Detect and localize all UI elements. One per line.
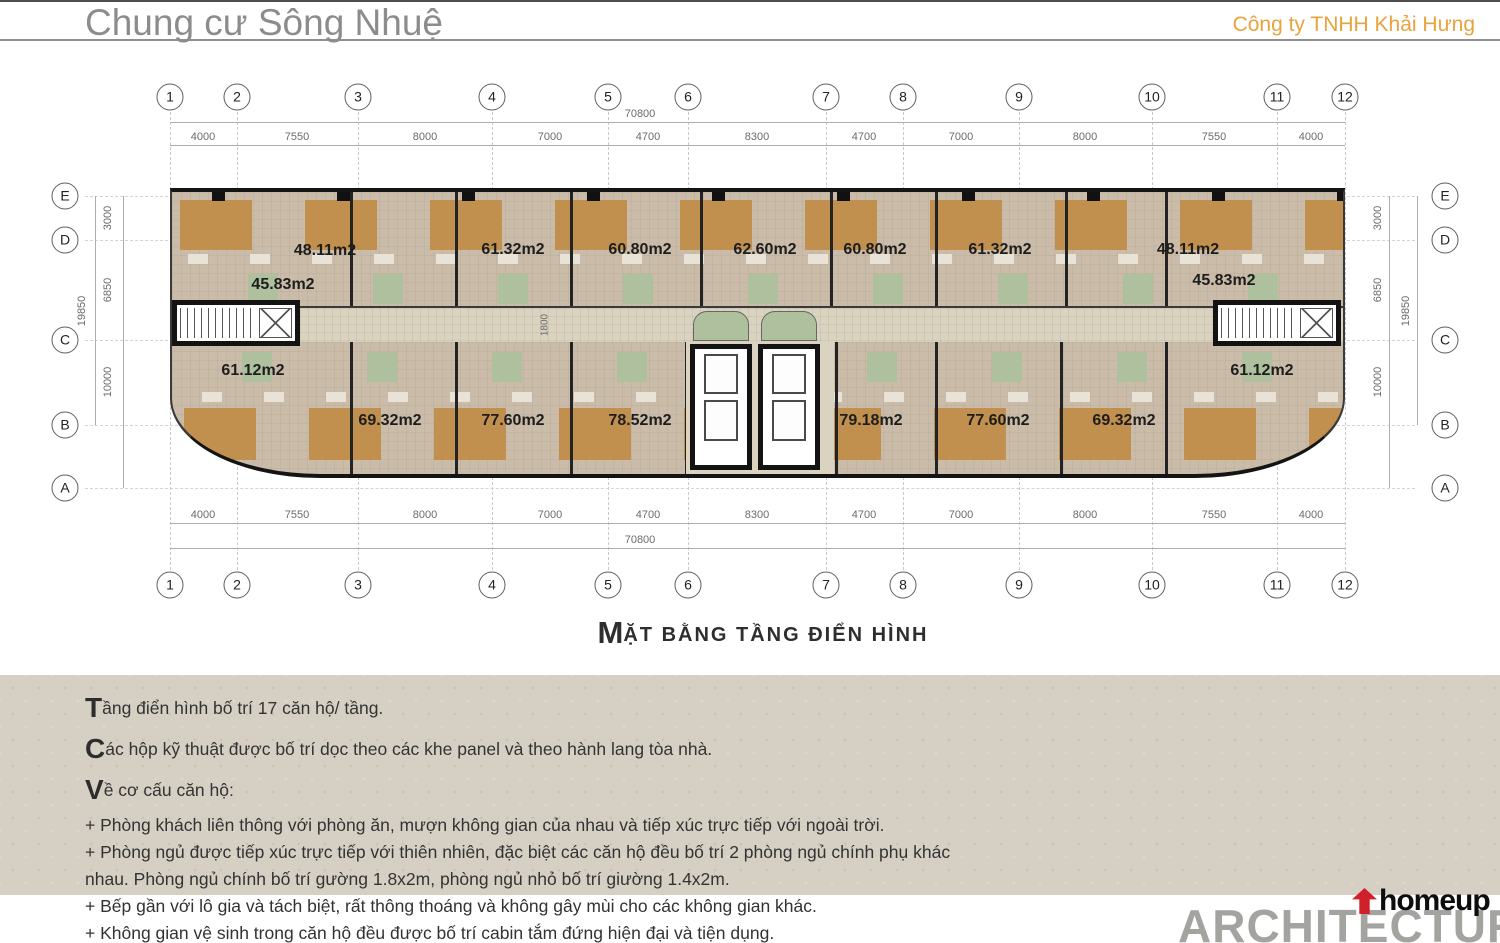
note-initial: C — [85, 733, 105, 764]
stair-core-left — [172, 300, 300, 346]
grid-row-bubble: E — [1432, 183, 1459, 210]
unit-area-label: 62.60m2 — [733, 241, 796, 259]
elevator-car — [772, 400, 806, 440]
page: Chung cư Sông Nhuệ Công ty TNHH Khải Hưn… — [0, 0, 1500, 943]
dimension-line — [170, 145, 1345, 146]
dimension-line — [170, 523, 1345, 524]
unit-wall — [1165, 342, 1168, 474]
grid-column-bubble: 8 — [890, 84, 917, 111]
unit-area-label: 48.11m2 — [1157, 241, 1219, 259]
note-rest: ầng điển hình bố trí 17 căn hộ/ tầng. — [102, 698, 383, 718]
grid-row-bubble: A — [52, 475, 79, 502]
dim-label: 4000 — [1299, 131, 1323, 143]
dim-label: 7550 — [1202, 509, 1226, 521]
dimension-line — [1389, 196, 1390, 488]
unit-area-label: 45.83m2 — [251, 276, 314, 294]
dim-label: 8300 — [745, 509, 769, 521]
caption-rest: ẶT BẰNG TẦNG ĐIỂN HÌNH — [623, 624, 928, 646]
dim-label: 7550 — [285, 509, 309, 521]
corridor — [170, 308, 1345, 342]
bullet-item: + Không gian vệ sinh trong căn hộ đều đư… — [85, 920, 990, 943]
company-name: Công ty TNHH Khải Hưng — [1233, 13, 1475, 37]
grid-column-bubble: 3 — [345, 84, 372, 111]
unit-wall — [570, 192, 573, 306]
dim-label: 10000 — [102, 367, 114, 398]
dim-label: 8000 — [413, 509, 437, 521]
stair-steps — [1221, 308, 1296, 338]
unit-wall — [700, 192, 703, 306]
grid-column-bubble: 9 — [1006, 84, 1033, 111]
elevator-car — [704, 354, 738, 394]
unit-area-label: 61.12m2 — [1230, 362, 1293, 380]
grid-column-bubble: 2 — [224, 84, 251, 111]
grid-line — [85, 488, 1415, 489]
dimension-line — [170, 122, 1345, 123]
dimension-line — [170, 548, 1345, 549]
dim-label: 7000 — [949, 131, 973, 143]
grid-column-bubble: 8 — [890, 572, 917, 599]
note-line: Các hộp kỹ thuật được bố trí dọc theo cá… — [85, 733, 990, 765]
dim-total-bottom: 70800 — [625, 534, 656, 546]
dim-label: 8300 — [745, 131, 769, 143]
grid-row-bubble: C — [1432, 327, 1459, 354]
grid-row-bubble: E — [52, 183, 79, 210]
unit-area-label: 61.12m2 — [221, 362, 284, 380]
grid-column-bubble: 6 — [675, 572, 702, 599]
grid-column-bubble: 7 — [813, 84, 840, 111]
notes-panel: Tầng điển hình bố trí 17 căn hộ/ tầng. C… — [0, 675, 1500, 895]
unit-wall — [570, 342, 573, 474]
grid-column-bubble: 2 — [224, 572, 251, 599]
bullet-item: + Bếp gần với lô gia và tách biệt, rất t… — [85, 893, 990, 920]
elevator-car — [704, 400, 738, 440]
dim-label: 8000 — [1073, 131, 1097, 143]
unit-wall — [835, 342, 838, 474]
note-initial: V — [85, 774, 104, 805]
stair-landing-x-icon — [1300, 308, 1333, 338]
grid-column-bubble: 9 — [1006, 572, 1033, 599]
note-rest: ác hộp kỹ thuật được bố trí dọc theo các… — [105, 739, 712, 759]
unit-wall — [1065, 192, 1068, 306]
grid-column-bubble: 11 — [1264, 84, 1291, 111]
elevator-shaft — [690, 344, 752, 470]
unit-area-label: 61.32m2 — [481, 241, 544, 259]
dim-label: 4700 — [852, 509, 876, 521]
note-rest: ề cơ cấu căn hộ: — [104, 780, 234, 800]
unit-wall — [1060, 342, 1063, 474]
dim-label: 8000 — [413, 131, 437, 143]
dimension-line — [95, 196, 96, 425]
dim-label: 4000 — [191, 131, 215, 143]
unit-wall — [935, 342, 938, 474]
stair-core-right — [1213, 300, 1341, 346]
bullet-item: + Phòng khách liên thông với phòng ăn, m… — [85, 812, 990, 839]
dim-label: 6850 — [102, 278, 114, 302]
brand-name: homeup — [1379, 884, 1490, 918]
dim-total-right: 19850 — [1400, 296, 1412, 327]
stair-steps — [180, 308, 255, 338]
unit-area-label: 45.83m2 — [1192, 272, 1255, 290]
note-initial: T — [85, 692, 102, 723]
grid-column-bubble: 1 — [157, 572, 184, 599]
dim-label: 7550 — [285, 131, 309, 143]
grid-column-bubble: 5 — [595, 572, 622, 599]
grid-column-bubble: 4 — [479, 572, 506, 599]
dim-label: 6850 — [1372, 278, 1384, 302]
unit-area-label: 61.32m2 — [968, 241, 1031, 259]
dim-label: 7000 — [538, 509, 562, 521]
unit-area-label: 77.60m2 — [966, 412, 1029, 430]
grid-column-bubble: 5 — [595, 84, 622, 111]
grid-column-bubble: 3 — [345, 572, 372, 599]
unit-wall — [455, 192, 458, 306]
grid-row-bubble: B — [52, 412, 79, 439]
unit-wall — [830, 192, 833, 306]
grid-column-bubble: 4 — [479, 84, 506, 111]
note-bullets: + Phòng khách liên thông với phòng ăn, m… — [85, 812, 990, 943]
dim-label: 3000 — [1372, 206, 1384, 230]
elevator-car — [772, 354, 806, 394]
grid-column-bubble: 11 — [1264, 572, 1291, 599]
house-up-icon — [1352, 888, 1377, 915]
grid-column-bubble: 10 — [1139, 572, 1166, 599]
unit-area-label: 77.60m2 — [481, 412, 544, 430]
dim-label: 4700 — [636, 131, 660, 143]
plan-caption: MẶT BẰNG TẦNG ĐIỂN HÌNH — [598, 615, 929, 651]
dim-label: 3000 — [102, 206, 114, 230]
dimension-line — [1417, 196, 1418, 425]
grid-column-bubble: 12 — [1332, 84, 1359, 111]
unit-area-label: 78.52m2 — [608, 412, 671, 430]
grid-row-bubble: D — [1432, 227, 1459, 254]
unit-wall — [935, 192, 938, 306]
dim-label: 8000 — [1073, 509, 1097, 521]
dim-total-left: 19850 — [76, 296, 88, 327]
caption-initial: M — [598, 615, 624, 650]
page-title: Chung cư Sông Nhuệ — [85, 2, 443, 44]
grid-column-bubble: 1 — [157, 84, 184, 111]
grid-line — [1345, 112, 1346, 575]
dim-label: 7000 — [538, 131, 562, 143]
dim-label: 7000 — [949, 509, 973, 521]
grid-row-bubble: D — [52, 227, 79, 254]
unit-area-label: 79.18m2 — [839, 412, 902, 430]
grid-column-bubble: 10 — [1139, 84, 1166, 111]
corridor-dim-label: 1800 — [540, 314, 551, 336]
unit-area-label: 60.80m2 — [608, 241, 671, 259]
elevator-shaft — [758, 344, 820, 470]
stair-landing-x-icon — [259, 308, 292, 338]
dimension-line — [123, 196, 124, 488]
core-lobby — [761, 311, 817, 341]
unit-area-label: 48.11m2 — [294, 242, 356, 260]
grid-column-bubble: 6 — [675, 84, 702, 111]
unit-wall — [455, 342, 458, 474]
unit-area-label: 69.32m2 — [1092, 412, 1155, 430]
notes-text: Tầng điển hình bố trí 17 căn hộ/ tầng. C… — [85, 683, 990, 943]
top-border — [0, 0, 1500, 2]
dim-label: 4000 — [191, 509, 215, 521]
bullet-item: + Phòng ngủ được tiếp xúc trực tiếp với … — [85, 839, 990, 893]
dim-label: 7550 — [1202, 131, 1226, 143]
note-line: Về cơ cấu căn hộ: — [85, 774, 990, 806]
grid-row-bubble: A — [1432, 475, 1459, 502]
dim-label: 4700 — [636, 509, 660, 521]
grid-row-bubble: B — [1432, 412, 1459, 439]
dim-label: 4700 — [852, 131, 876, 143]
unit-area-label: 69.32m2 — [358, 412, 421, 430]
dim-total-top: 70800 — [625, 108, 656, 120]
brand-logo: homeup — [1352, 884, 1490, 918]
grid-column-bubble: 12 — [1332, 572, 1359, 599]
core-lobby — [693, 311, 749, 341]
grid-row-bubble: C — [52, 327, 79, 354]
dim-label: 4000 — [1299, 509, 1323, 521]
unit-wall — [350, 342, 353, 474]
dim-label: 10000 — [1372, 367, 1384, 398]
note-line: Tầng điển hình bố trí 17 căn hộ/ tầng. — [85, 692, 990, 724]
unit-area-label: 60.80m2 — [843, 241, 906, 259]
grid-column-bubble: 7 — [813, 572, 840, 599]
